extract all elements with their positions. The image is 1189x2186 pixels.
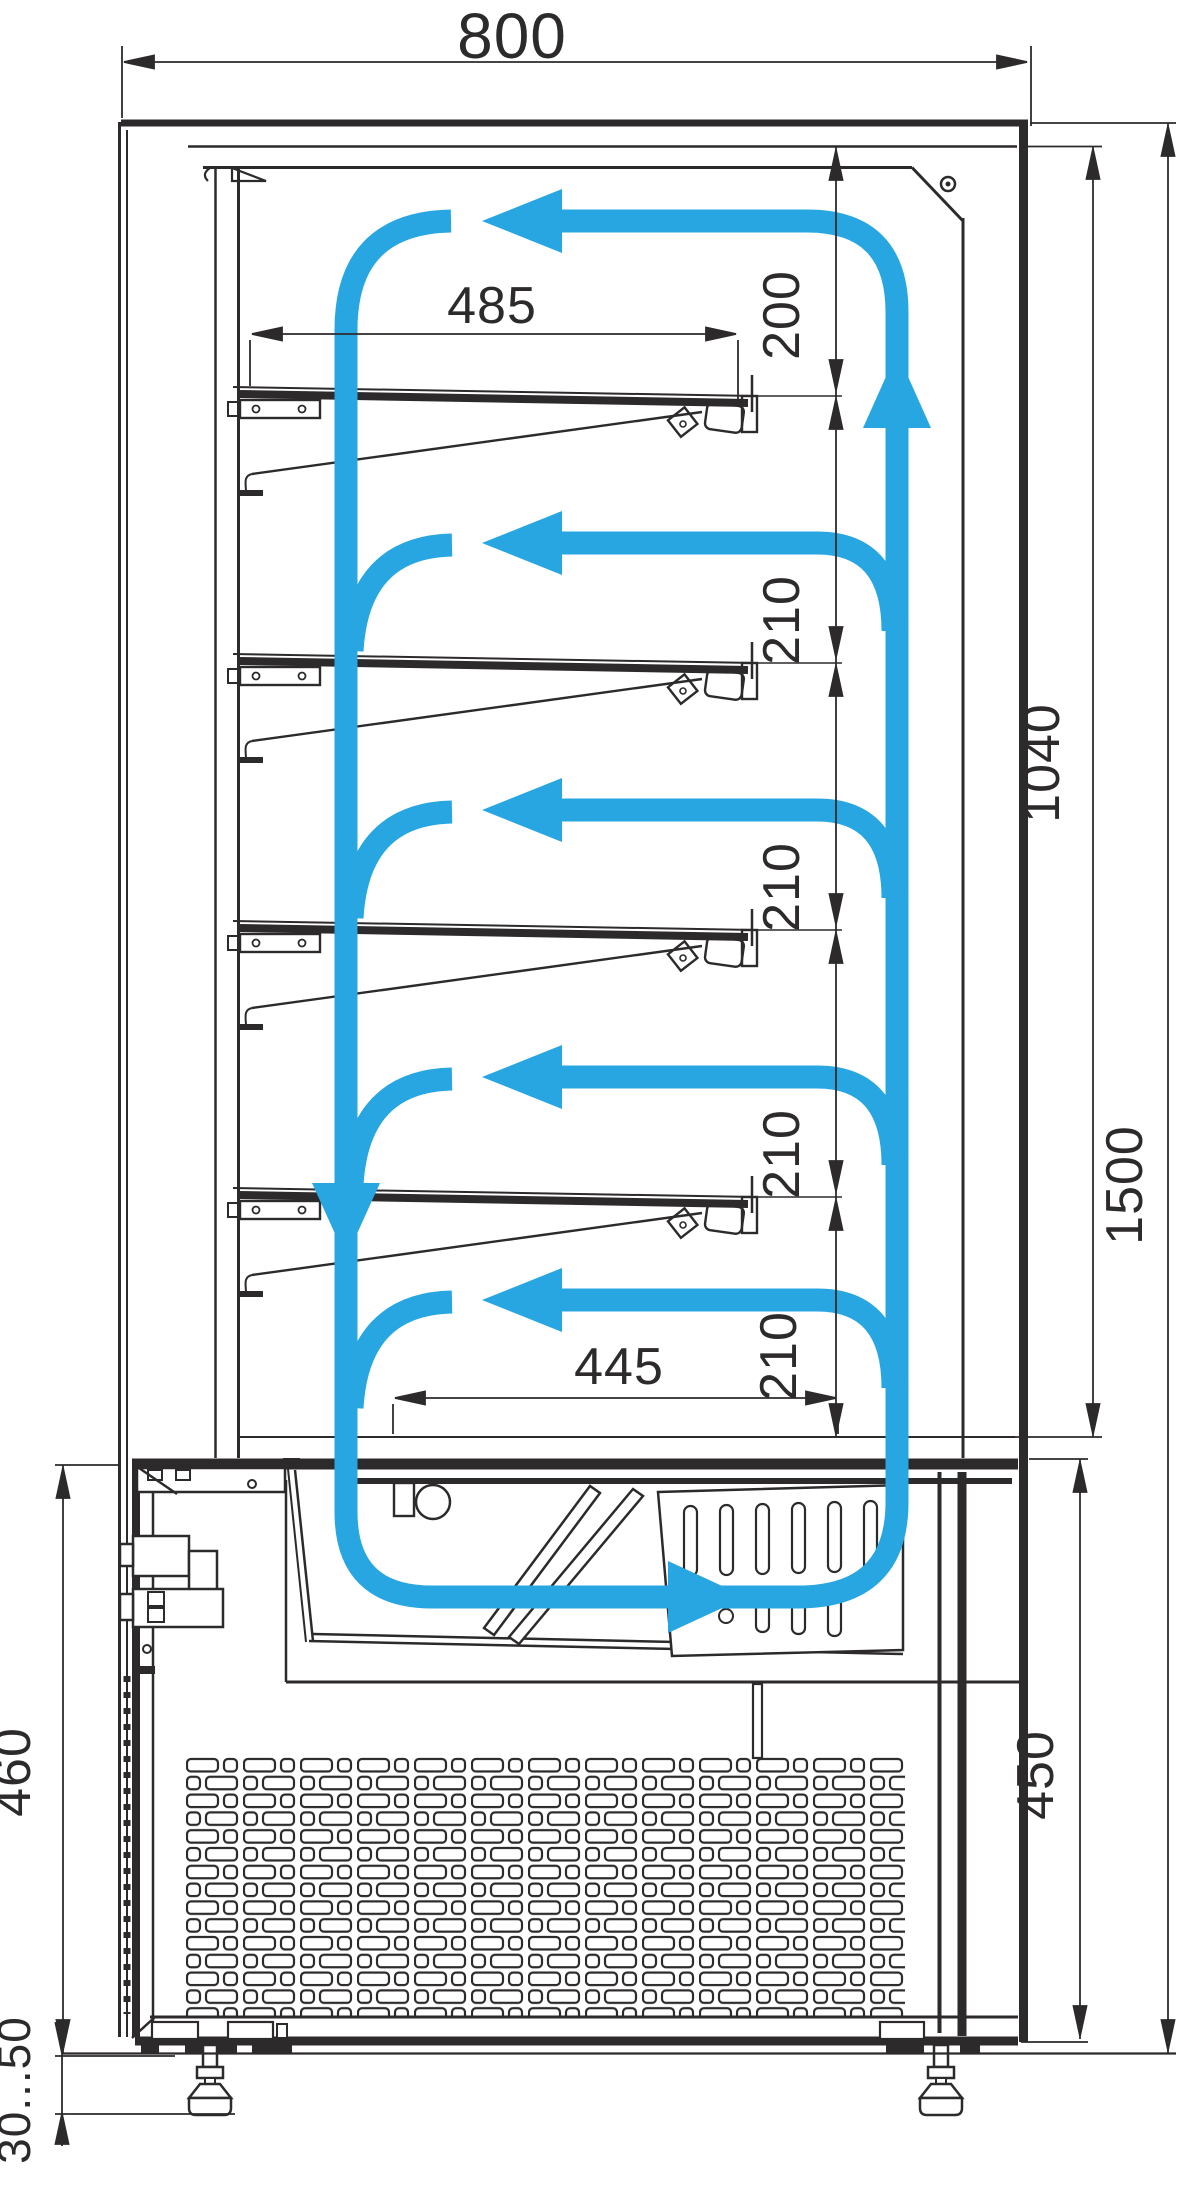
dim-label-1500: 1500 [1096,1125,1154,1245]
airflow-arrow-up [863,352,931,428]
dim-base-left [55,1465,119,2053]
dim-label-210-4: 210 [750,1311,808,1401]
dim-label-200: 200 [753,270,811,360]
airflow-arrow-top [482,189,562,253]
dim-label-460: 460 [0,1727,42,1817]
ceiling-bracket [205,168,266,181]
dim-label-210-3: 210 [753,1109,811,1199]
dim-label-800: 800 [457,0,567,72]
electrical-box [120,1468,285,1674]
dim-overall-width [122,46,1031,126]
shelf-3 [228,909,842,1027]
dim-label-445: 445 [574,1338,664,1396]
drain-pipe [753,1684,762,1758]
dim-label-1040: 1040 [1013,703,1071,823]
fan-unit [394,1483,450,1519]
airflow-jet-2 [352,778,893,918]
airflow-jet-3 [352,1045,893,1185]
dim-chain-gaps [830,147,843,1437]
dim-label-foot-range: 30...50 [0,2016,40,2164]
dim-label-485: 485 [447,277,537,335]
evaporator-coil [484,1486,643,1644]
foot-plates [152,2022,924,2039]
airflow-arrow-down [312,1183,380,1258]
dim-label-210-1: 210 [753,575,811,665]
dim-label-210-2: 210 [753,842,811,932]
shelf-2 [228,642,842,760]
dim-label-450: 450 [1007,1730,1065,1820]
chamfer-line [912,168,963,222]
technical-drawing: 800 485 200 210 210 210 210 445 1040 150… [0,0,1189,2186]
shelf-1 [228,375,842,493]
foot-left [189,2045,231,2115]
vent-grille [186,1757,905,2018]
airflow-jet-1 [352,511,893,651]
drawing-canvas: 800 485 200 210 210 210 210 445 1040 150… [0,0,1189,2186]
foot-right [920,2045,962,2115]
screw-hole-center [946,182,951,187]
